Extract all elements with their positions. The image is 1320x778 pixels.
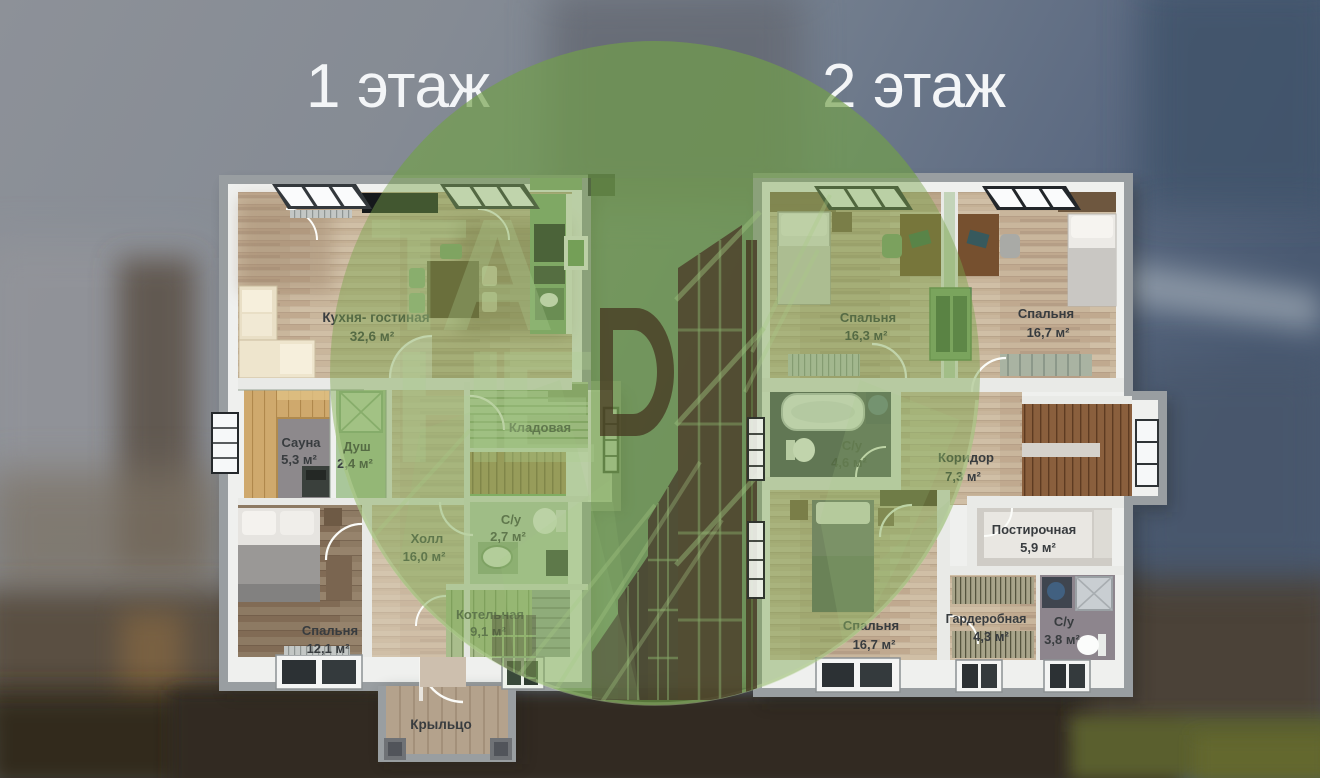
svg-text:Гардеробная: Гардеробная bbox=[946, 612, 1027, 626]
svg-text:16,7 м²: 16,7 м² bbox=[1027, 325, 1071, 340]
svg-text:Сауна: Сауна bbox=[281, 435, 321, 450]
svg-text:Спальня: Спальня bbox=[302, 623, 358, 638]
svg-text:Спальня: Спальня bbox=[1018, 306, 1074, 321]
svg-text:3,8 м²: 3,8 м² bbox=[1044, 632, 1080, 647]
svg-text:4,3 м²: 4,3 м² bbox=[973, 629, 1009, 644]
svg-text:16,7 м²: 16,7 м² bbox=[853, 637, 897, 652]
svg-text:Крыльцо: Крыльцо bbox=[410, 717, 471, 732]
svg-text:С/у: С/у bbox=[1054, 614, 1075, 629]
svg-text:5,3 м²: 5,3 м² bbox=[281, 452, 317, 467]
svg-text:5,9 м²: 5,9 м² bbox=[1020, 540, 1056, 555]
svg-text:Постирочная: Постирочная bbox=[992, 522, 1076, 537]
svg-text:12,1 м²: 12,1 м² bbox=[307, 641, 351, 656]
